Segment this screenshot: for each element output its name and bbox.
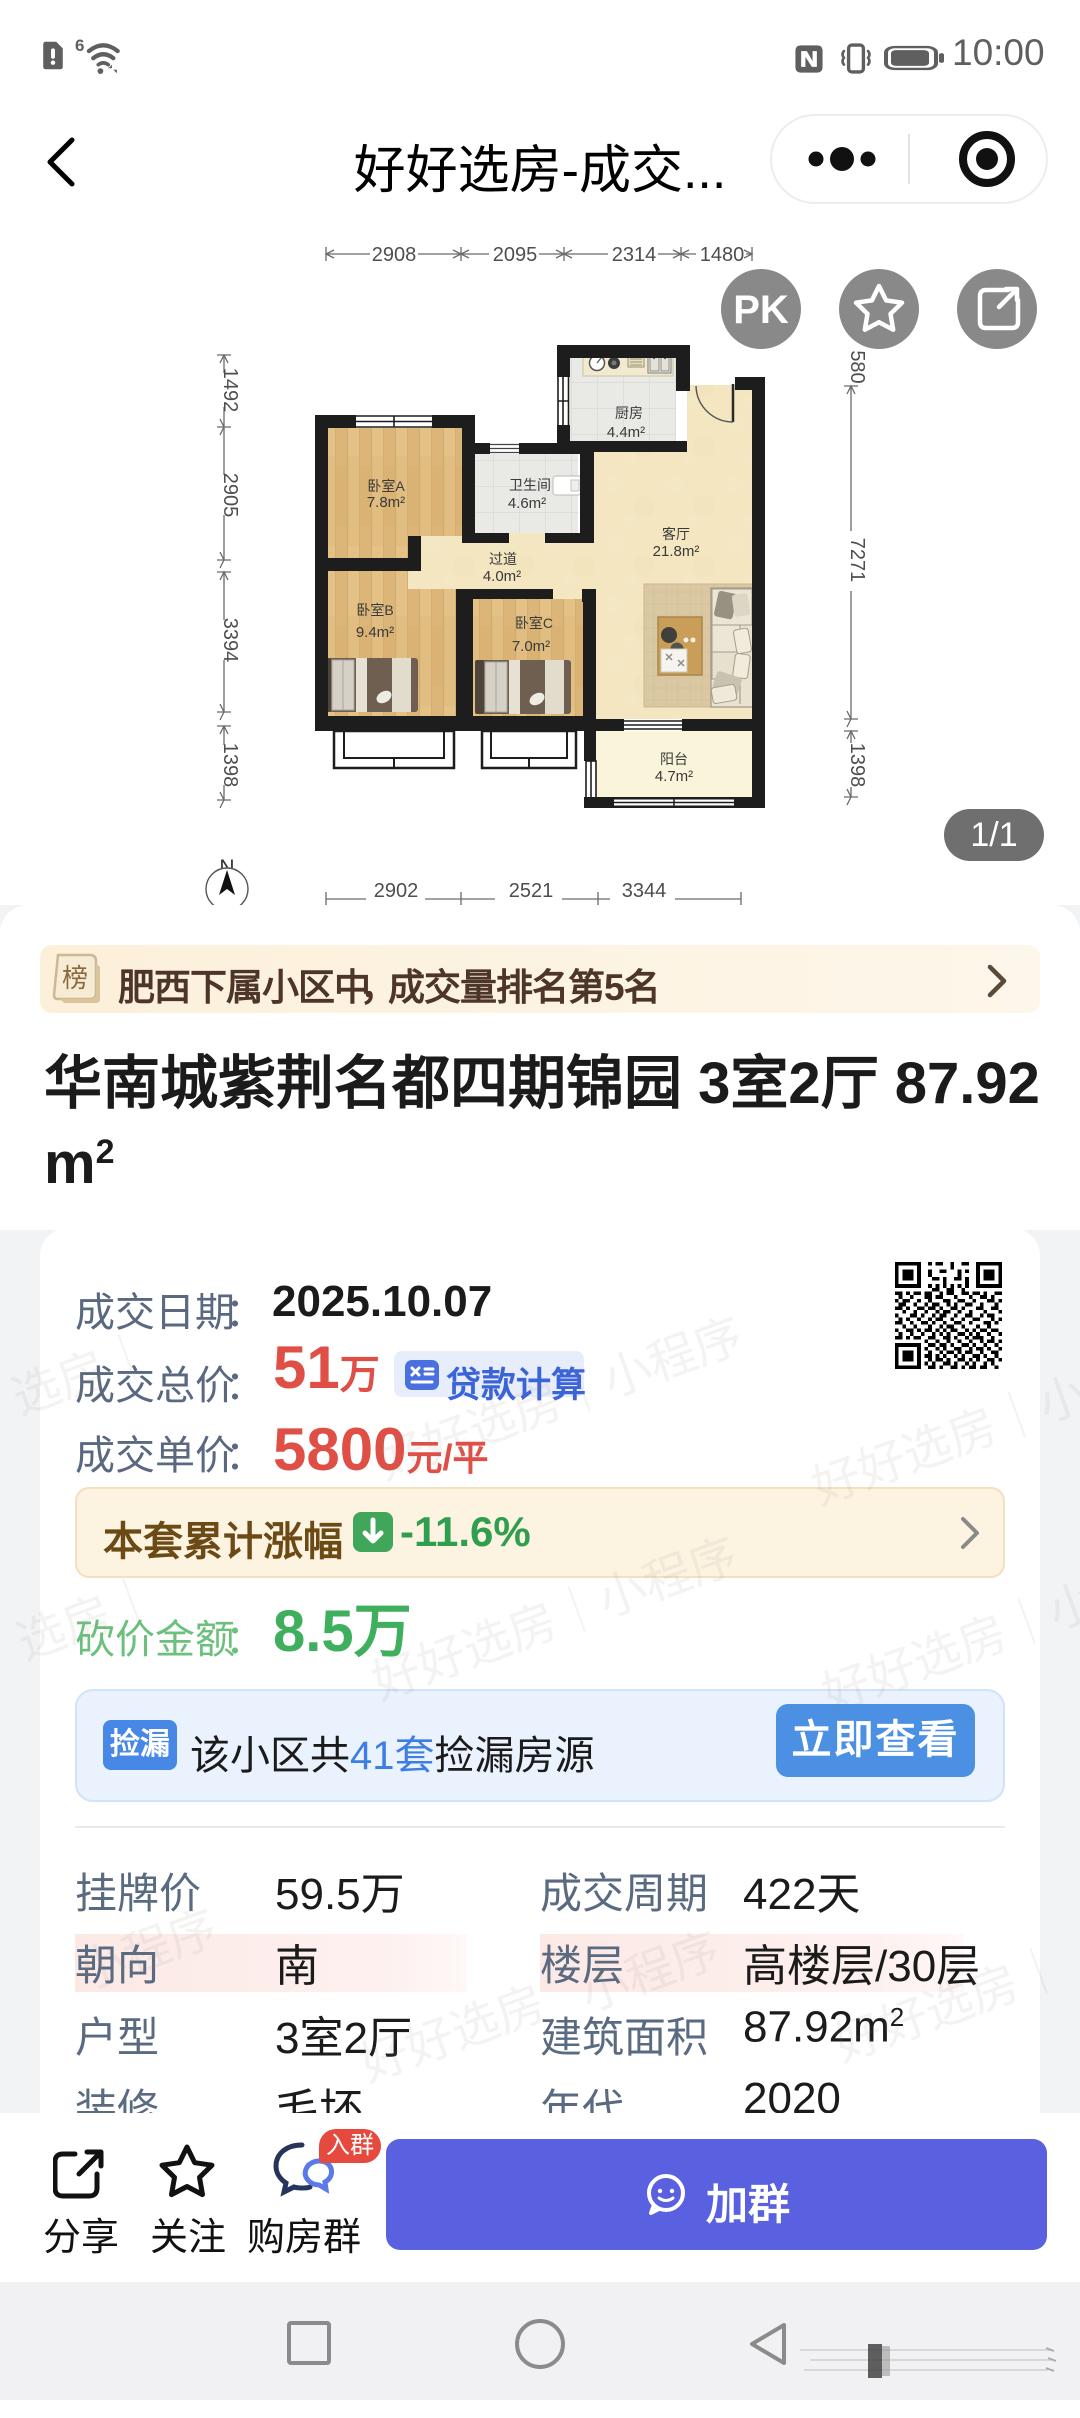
svg-text:4.4m²: 4.4m² — [607, 424, 645, 441]
svg-text:2095: 2095 — [493, 244, 538, 266]
svg-text:客厅: 客厅 — [662, 526, 690, 542]
svg-text:卧室A: 卧室A — [367, 478, 405, 494]
svg-text:4.0m²: 4.0m² — [483, 568, 521, 585]
svg-text:PK: PK — [733, 288, 789, 332]
svg-text:2521: 2521 — [509, 880, 554, 902]
svg-text:2905: 2905 — [219, 473, 241, 518]
svg-text:2314: 2314 — [612, 244, 657, 266]
svg-text:21.8m²: 21.8m² — [653, 543, 700, 560]
svg-text:1398: 1398 — [219, 743, 241, 788]
svg-text:1398: 1398 — [846, 743, 868, 788]
svg-text:2908: 2908 — [372, 244, 417, 266]
svg-text:4.7m²: 4.7m² — [655, 768, 693, 785]
svg-text:4.6m²: 4.6m² — [508, 495, 546, 512]
svg-text:3344: 3344 — [622, 880, 667, 902]
svg-text:7.0m²: 7.0m² — [512, 638, 550, 655]
svg-text:过道: 过道 — [489, 551, 517, 567]
svg-text:卧室B: 卧室B — [356, 602, 393, 618]
svg-text:580: 580 — [846, 350, 868, 383]
svg-text:2902: 2902 — [374, 880, 419, 902]
svg-text:1/1: 1/1 — [970, 816, 1017, 854]
svg-text:1480: 1480 — [700, 244, 745, 266]
svg-text:卧室C: 卧室C — [515, 615, 553, 631]
svg-text:阳台: 阳台 — [660, 751, 688, 767]
svg-text:厨房: 厨房 — [615, 405, 643, 421]
svg-text:卫生间: 卫生间 — [509, 477, 551, 493]
svg-text:3394: 3394 — [219, 618, 241, 663]
svg-text:9.4m²: 9.4m² — [356, 624, 394, 641]
svg-text:7.8m²: 7.8m² — [367, 494, 405, 511]
svg-text:榜: 榜 — [62, 963, 88, 993]
svg-text:1492: 1492 — [219, 368, 241, 413]
svg-text:7271: 7271 — [846, 538, 868, 583]
